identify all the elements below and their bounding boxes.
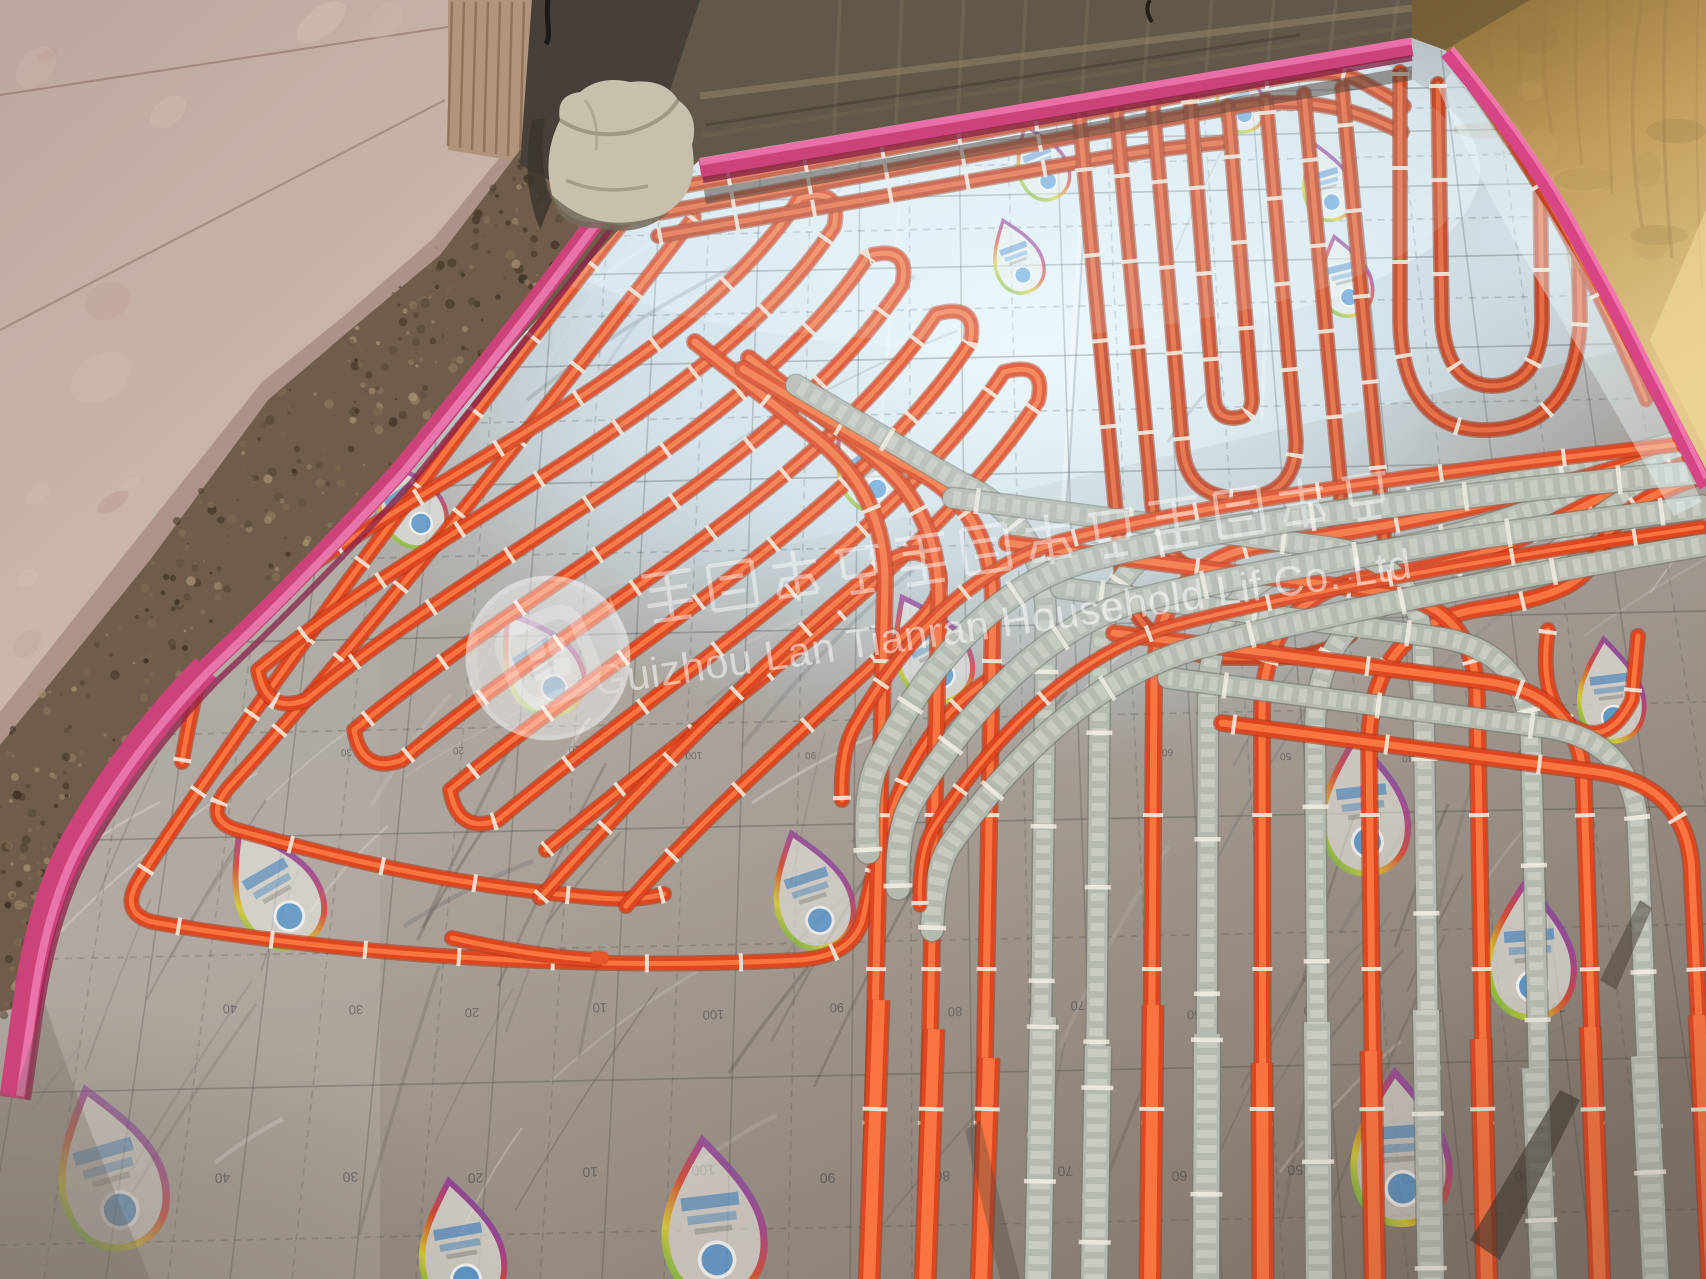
- svg-text:50: 50: [1279, 750, 1291, 761]
- svg-text:10: 10: [592, 1000, 607, 1015]
- svg-text:90: 90: [829, 1000, 844, 1015]
- svg-text:90: 90: [819, 1170, 835, 1187]
- svg-text:60: 60: [1161, 746, 1173, 757]
- svg-text:60: 60: [1171, 1168, 1187, 1185]
- svg-text:20: 20: [465, 1005, 480, 1020]
- svg-text:90: 90: [804, 749, 816, 760]
- svg-text:40: 40: [222, 1001, 237, 1016]
- svg-text:70: 70: [1070, 998, 1085, 1013]
- svg-text:70: 70: [1057, 1163, 1073, 1180]
- svg-text:20: 20: [452, 744, 464, 755]
- svg-text:80: 80: [948, 1004, 963, 1019]
- svg-text:100: 100: [702, 1007, 724, 1023]
- svg-text:30: 30: [348, 1002, 363, 1017]
- svg-text:30: 30: [340, 746, 352, 757]
- svg-text:10: 10: [582, 1164, 598, 1181]
